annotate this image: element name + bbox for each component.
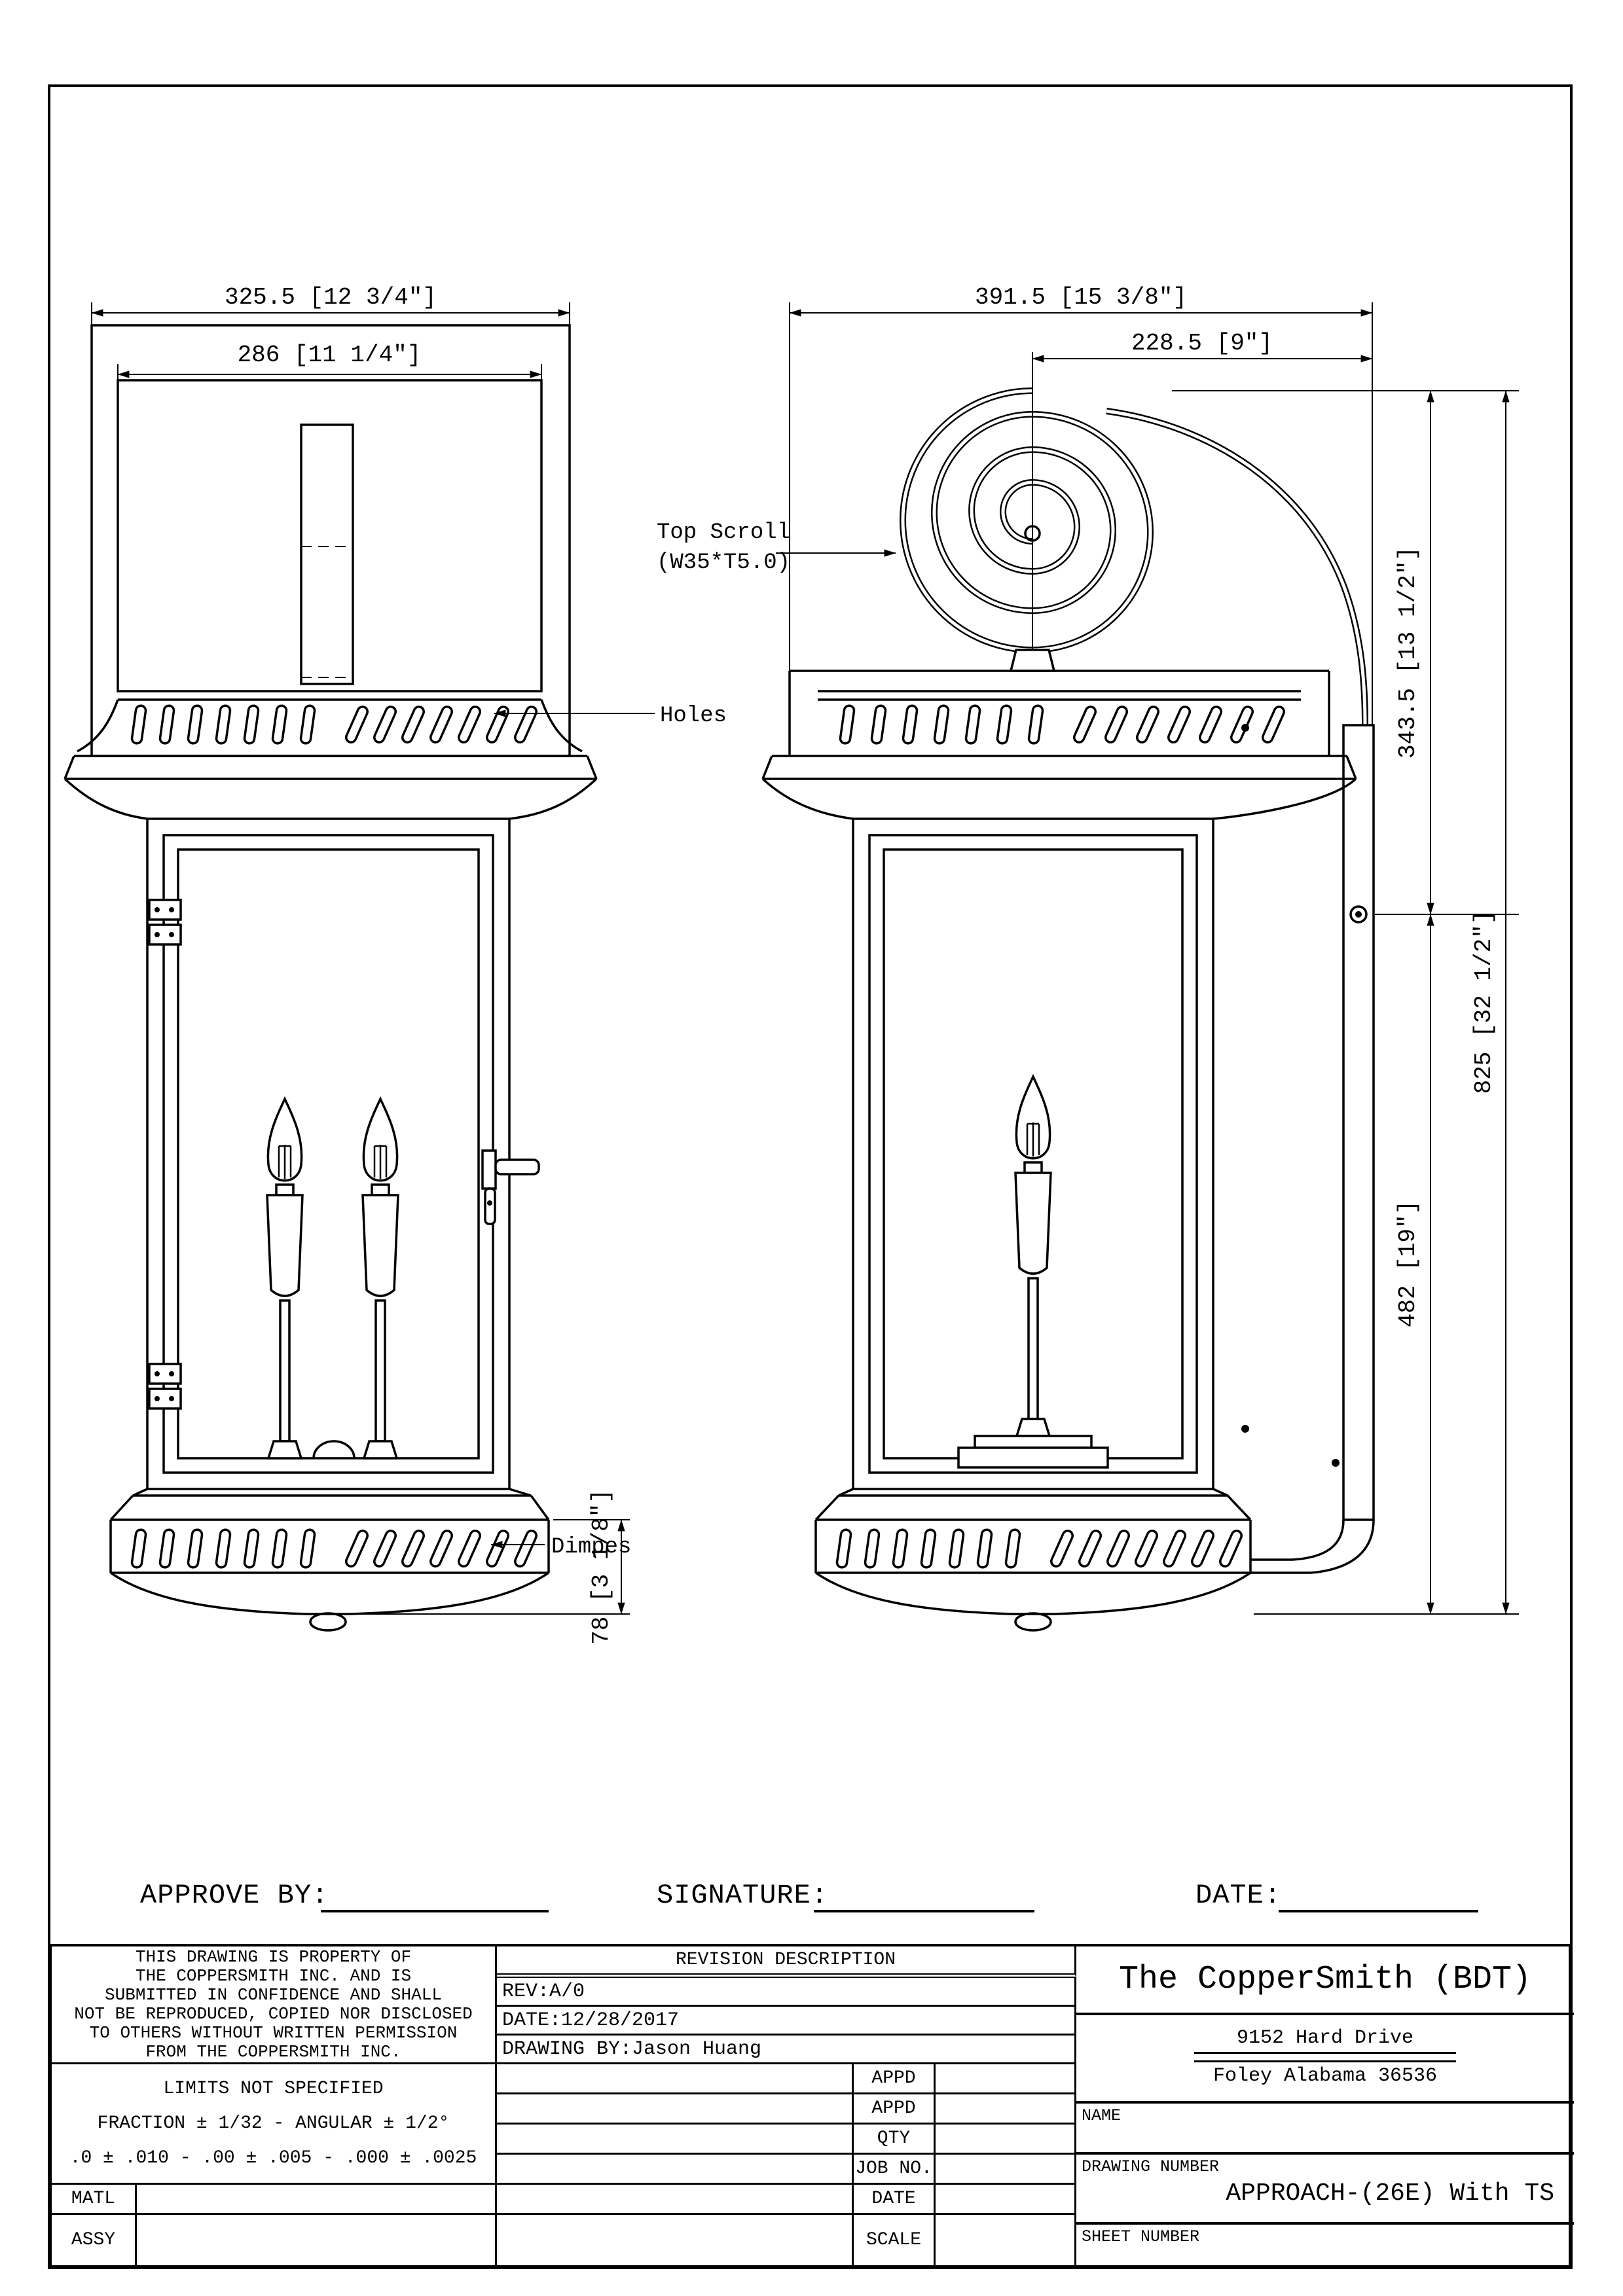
limits-line: FRACTION ± 1/32 - ANGULAR ± 1/2°: [98, 2113, 450, 2134]
drawing-number-label: DRAWING NUMBER: [1076, 2155, 1574, 2176]
assy-label-cell: ASSY: [52, 2215, 137, 2265]
drawing-sheet: 325.5 [12 3/4″] 286 [11 1/4″]: [0, 0, 1623, 2296]
disclaimer-line: FROM THE COPPERSMITH INC.: [145, 2043, 401, 2062]
job-no-label-cell: JOB NO.: [854, 2155, 936, 2185]
chimney-tube: [301, 425, 353, 684]
top-scroll-label-line1: Top Scroll: [657, 520, 790, 545]
front-head-louvers: [132, 705, 538, 744]
date-line: [1279, 1910, 1478, 1912]
scale-value-cell: [936, 2215, 1076, 2265]
dim-front-base-height: 78 [3 1/8″]: [588, 1489, 615, 1645]
burner-dome: [314, 1441, 354, 1458]
dim-side-scroll-width: 228.5 [9″]: [1131, 330, 1273, 357]
appd-value-cell: [936, 2094, 1076, 2125]
front-view: 325.5 [12 3/4″] 286 [11 1/4″]: [65, 284, 727, 1645]
dim-side-top-height: 343.5 [13 1/2″]: [1395, 547, 1421, 759]
assy-value-cell: [137, 2215, 497, 2265]
appd-label-cell: APPD: [854, 2064, 936, 2094]
disclaimer-line: NOT BE REPRODUCED, COPIED NOR DISCLOSED: [74, 2005, 473, 2024]
name-cell: NAME: [1076, 2104, 1574, 2155]
wall-mount-plate: [1241, 724, 1374, 1573]
limits-line: LIMITS NOT SPECIFIED: [163, 2079, 383, 2099]
door-hinges: [149, 900, 181, 1408]
scale-label-cell: SCALE: [854, 2215, 936, 2265]
approve-by-line: [321, 1910, 549, 1912]
title-block: THIS DRAWING IS PROPERTY OF THE COPPERSM…: [49, 1944, 1571, 2268]
dim-side-overall-height: 825 [32 1/2″]: [1470, 910, 1497, 1094]
door-latch: [483, 1151, 539, 1224]
matl-label-cell: MATL: [52, 2185, 137, 2215]
candle-side: [1015, 1077, 1051, 1436]
dim-side-body-height: 482 [19″]: [1395, 1200, 1421, 1327]
pedestal-box: [958, 1448, 1108, 1467]
top-scroll-label-line2: (W35*T5.0): [657, 550, 790, 575]
revision-header-cell: REVISION DESCRIPTION: [497, 1946, 1076, 1978]
company-address-cell: 9152 Hard Drive Foley Alabama 36536: [1076, 2015, 1574, 2104]
rev-cell: REV:A/0: [497, 1978, 1076, 2007]
date-label: DATE:: [1195, 1880, 1281, 1911]
side-base-louvers: [837, 1529, 1243, 1568]
revision-empty-cell: [497, 2215, 854, 2265]
revision-empty-cell: [497, 2064, 854, 2094]
signature-line: [814, 1910, 1034, 1912]
revision-empty-cell: [497, 2155, 854, 2185]
signature-label: SIGNATURE:: [657, 1880, 828, 1911]
appd-label-cell: APPD: [854, 2094, 936, 2125]
qty-value-cell: [936, 2125, 1076, 2155]
drawing-by-cell: DRAWING BY:Jason Huang: [497, 2036, 1076, 2064]
front-base-louvers: [132, 1529, 538, 1568]
dim-side-overall-width: 391.5 [15 3/8″]: [975, 284, 1187, 311]
holes-label: Holes: [660, 704, 727, 728]
disclaimer-line: TO OTHERS WITHOUT WRITTEN PERMISSION: [90, 2024, 458, 2043]
finial-front: [310, 1613, 346, 1630]
dim-front-inner-width: 286 [11 1/4″]: [238, 342, 422, 368]
address-line1: 9152 Hard Drive: [1076, 2027, 1574, 2049]
matl-value-cell: [137, 2185, 497, 2215]
company-name: The CopperSmith (BDT): [1076, 1946, 1574, 2015]
revision-date-cell: DATE:12/28/2017: [497, 2007, 1076, 2036]
approve-by-label: APPROVE BY:: [140, 1880, 329, 1911]
revision-empty-cell: [497, 2094, 854, 2125]
limits-line: .0 ± .010 - .00 ± .005 - .000 ± .0025: [70, 2148, 477, 2168]
date-label-cell: DATE: [854, 2185, 936, 2215]
qty-label-cell: QTY: [854, 2125, 936, 2155]
disclaimer-line: SUBMITTED IN CONFIDENCE AND SHALL: [105, 1986, 442, 2005]
address-divider: [1194, 2052, 1456, 2062]
sheet-number-cell: SHEET NUMBER: [1076, 2225, 1574, 2265]
drawing-number-cell: DRAWING NUMBER APPROACH-(26E) With TS: [1076, 2155, 1574, 2225]
drawing-number-value: APPROACH-(26E) With TS: [1226, 2179, 1554, 2208]
pedestal-plate: [975, 1436, 1091, 1448]
finial-side: [1015, 1613, 1051, 1630]
top-scroll: [903, 352, 1365, 725]
address-line2: Foley Alabama 36536: [1076, 2065, 1574, 2087]
side-view: 391.5 [15 3/8″] 228.5 [9″]: [657, 284, 1519, 1630]
disclaimer-cell: THIS DRAWING IS PROPERTY OF THE COPPERSM…: [52, 1946, 497, 2064]
dim-front-overall-width: 325.5 [12 3/4″]: [225, 284, 437, 311]
disclaimer-line: THIS DRAWING IS PROPERTY OF: [136, 1948, 411, 1967]
job-no-value-cell: [936, 2155, 1076, 2185]
date-value-cell: [936, 2185, 1076, 2215]
side-head-louvers: [840, 705, 1286, 744]
tolerance-limits-cell: LIMITS NOT SPECIFIED FRACTION ± 1/32 - A…: [52, 2064, 497, 2185]
dimples-label: Dimpes: [551, 1535, 631, 1560]
candles-front: [267, 1099, 398, 1458]
revision-empty-cell: [497, 2125, 854, 2155]
revision-empty-cell: [497, 2185, 854, 2215]
disclaimer-line: THE COPPERSMITH INC. AND IS: [136, 1967, 411, 1986]
appd-value-cell: [936, 2064, 1076, 2094]
